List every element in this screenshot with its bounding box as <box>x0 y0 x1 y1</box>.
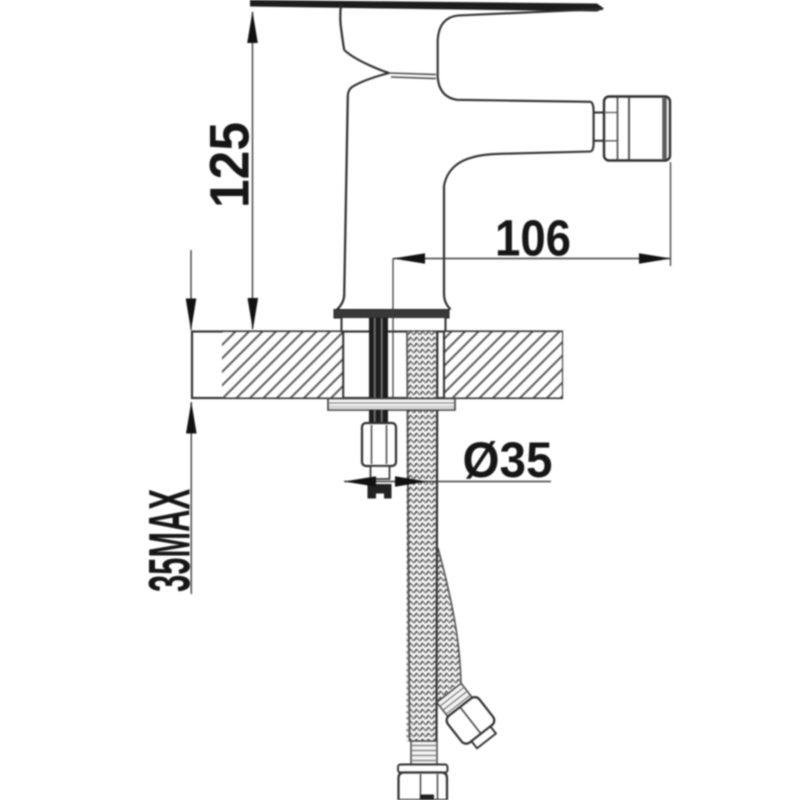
svg-text:Ø35: Ø35 <box>463 432 553 488</box>
svg-text:35MAX: 35MAX <box>138 489 203 592</box>
svg-text:106: 106 <box>495 210 571 267</box>
svg-text:125: 125 <box>198 122 261 208</box>
